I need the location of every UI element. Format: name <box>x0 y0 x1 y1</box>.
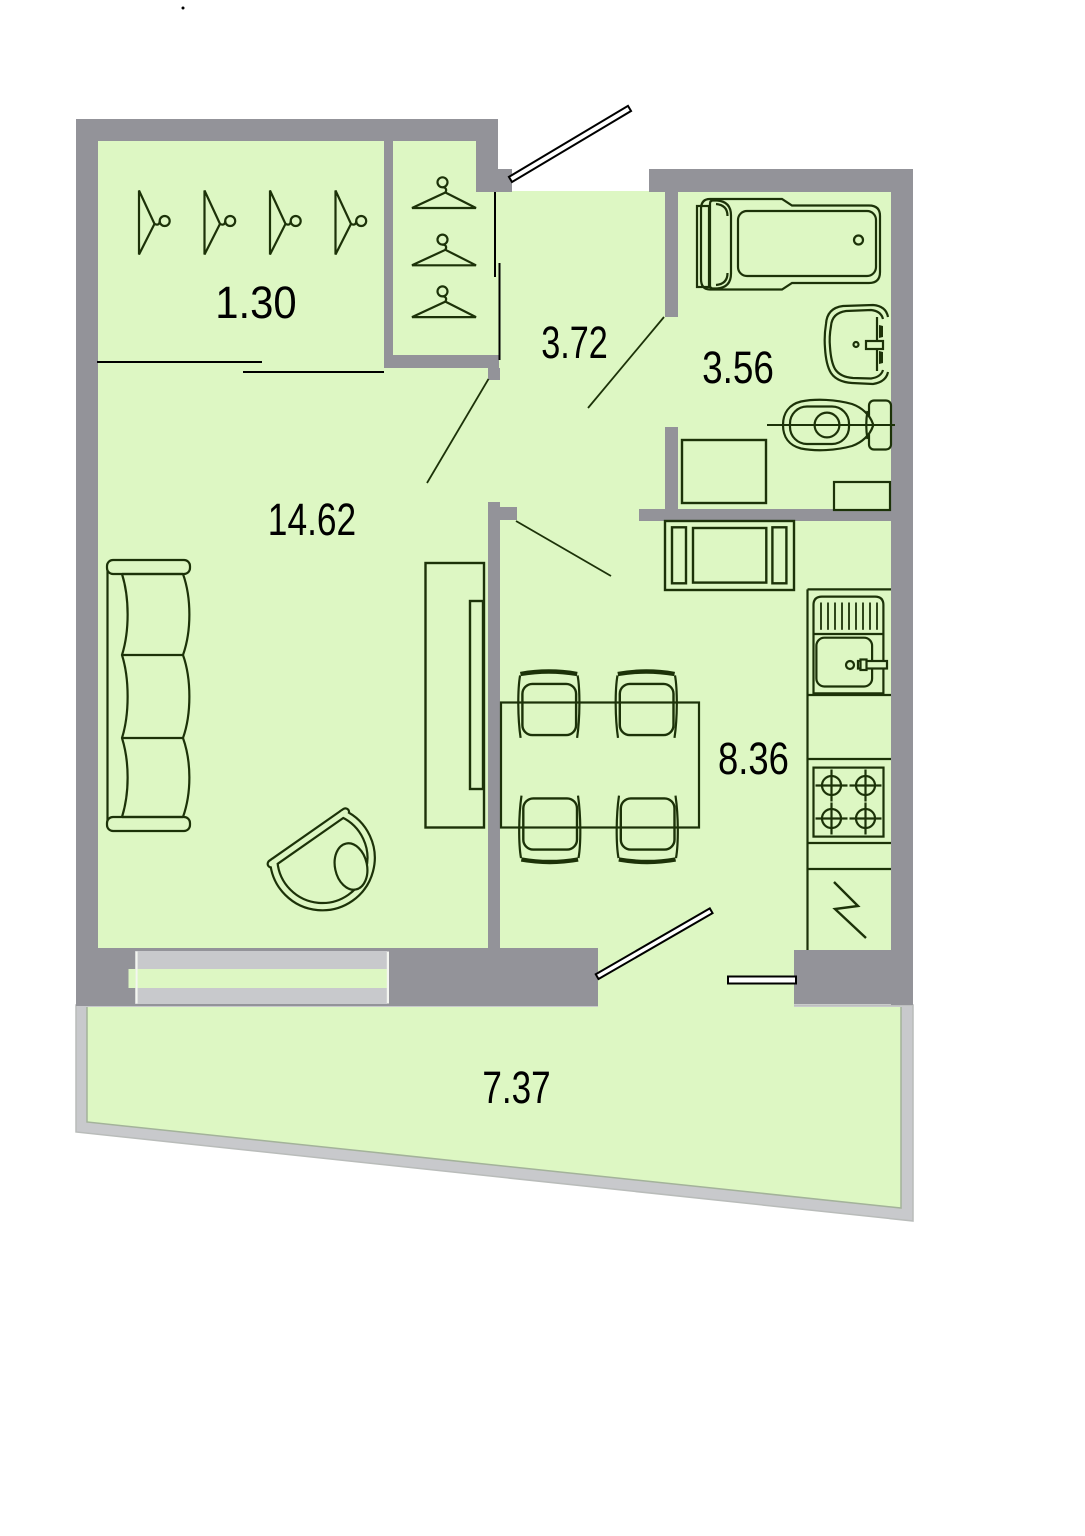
svg-text:8.36: 8.36 <box>718 733 789 784</box>
svg-text:3.72: 3.72 <box>541 319 608 369</box>
svg-text:7.37: 7.37 <box>482 1062 550 1113</box>
svg-text:3.56: 3.56 <box>702 343 774 393</box>
svg-text:14.62: 14.62 <box>268 494 356 545</box>
svg-text:1.30: 1.30 <box>215 279 296 329</box>
